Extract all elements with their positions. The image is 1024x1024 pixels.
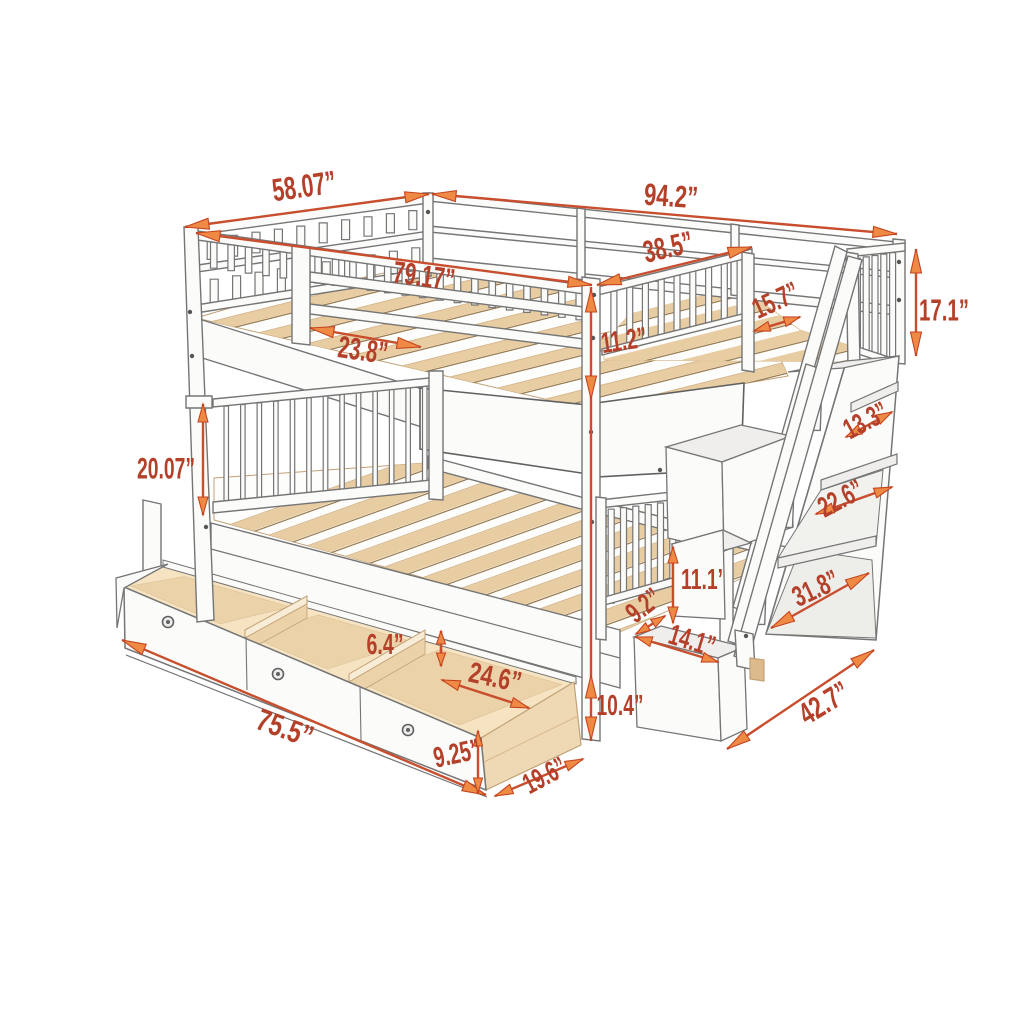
svg-text:6.4”: 6.4” (367, 629, 404, 661)
svg-text:17.1”: 17.1” (919, 293, 969, 328)
svg-text:94.2”: 94.2” (643, 177, 699, 216)
svg-text:23.8”: 23.8” (336, 329, 390, 371)
svg-text:11.1’: 11.1’ (681, 564, 723, 596)
svg-text:11.2”: 11.2” (599, 322, 649, 360)
svg-text:20.07”: 20.07” (137, 453, 195, 486)
svg-text:10.4”: 10.4” (597, 690, 644, 722)
